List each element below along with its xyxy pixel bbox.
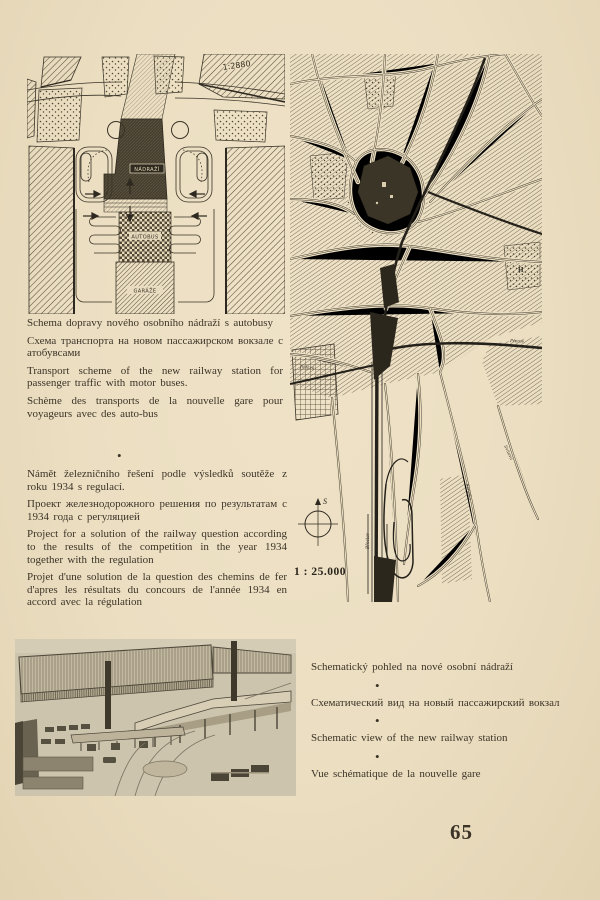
- caption-project-en: Project for a solution of the railway qu…: [27, 528, 287, 566]
- caption-transport-fr: Schème des transports de la nouvelle gar…: [27, 395, 283, 420]
- north-arrow-icon: [315, 498, 321, 505]
- map-area-label-h: H: [518, 266, 524, 274]
- caption-block-project: Námět železničního řešení podle výsledků…: [27, 468, 287, 614]
- caption-transport-ru: Схема транспорта на новом пассажирском в…: [27, 335, 283, 360]
- city-railway-map-drawing: H: [290, 54, 542, 602]
- sketch-pylon-right: [231, 641, 237, 701]
- plan-station-label: NÁDRAŽÍ: [134, 165, 160, 173]
- caption-transport-en: Transport scheme of the new railway stat…: [27, 365, 283, 390]
- map-road-label-east: Přerov: [509, 338, 525, 344]
- bullet-separator: •: [311, 715, 563, 726]
- caption-project-cs: Námět železničního řešení podle výsledků…: [27, 468, 287, 493]
- compass-north-letter: S: [323, 497, 327, 506]
- station-site-plan-drawing: NÁDRAŽÍ AUTOBUS GARÁŽE: [27, 54, 285, 314]
- caption-project-fr: Projet d'une solution de la question des…: [27, 571, 287, 609]
- station-perspective-sketch: [15, 639, 296, 796]
- bullet-separator: •: [117, 450, 122, 461]
- caption-project-ru: Проект железнодорожного решения по резул…: [27, 498, 287, 523]
- caption-transport-cs: Schema dopravy nového osobního nádraží s…: [27, 317, 283, 330]
- book-page: NÁDRAŽÍ AUTOBUS GARÁŽE: [0, 0, 600, 900]
- map-scale-label: 1 : 25.000: [294, 566, 346, 578]
- bullet-separator: •: [311, 751, 563, 762]
- caption-block-view: Schematický pohled na nové osobní nádraž…: [311, 661, 563, 786]
- plan-station-block: [104, 119, 167, 199]
- sketch-pylon-left: [105, 661, 111, 729]
- plan-transition-band: [104, 199, 167, 212]
- caption-view-en: Schematic view of the new railway statio…: [311, 732, 563, 745]
- plan-garage-label: GARÁŽE: [134, 287, 157, 295]
- plan-approach-fan: [121, 54, 175, 119]
- plan-traffic-circle-right: [172, 122, 189, 139]
- compass-icon: [298, 498, 338, 546]
- caption-block-transport: Schema dopravy nového osobního nádraží s…: [27, 317, 283, 425]
- map-road-label-south: Břeclav: [365, 532, 370, 550]
- plan-bus-label: AUTOBUS: [131, 235, 158, 241]
- caption-view-ru: Схематический вид на новый пассажирский …: [311, 697, 563, 710]
- page-number: 65: [450, 820, 473, 845]
- sketch-building-left: [15, 719, 39, 785]
- bullet-separator: •: [311, 680, 563, 691]
- caption-view-cs: Schematický pohled na nové osobní nádraž…: [311, 661, 563, 674]
- sketch-traffic-island: [143, 761, 187, 777]
- caption-view-fr: Vue schématique de la nouvelle gare: [311, 768, 563, 781]
